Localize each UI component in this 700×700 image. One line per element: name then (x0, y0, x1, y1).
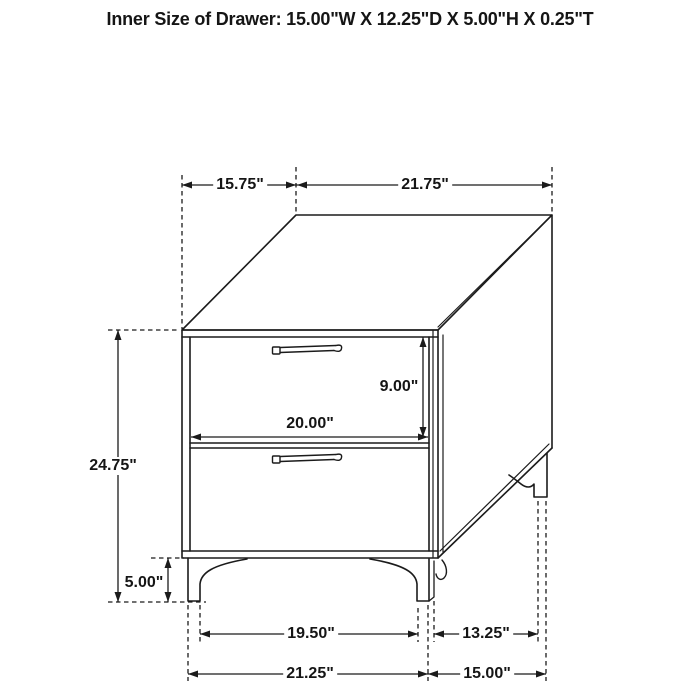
dim-label-leg-height: 5.00" (122, 574, 167, 592)
back-right-leg (509, 453, 547, 497)
dim-label-drawer-front-width: 20.00" (283, 415, 337, 433)
side-bottom-slant-inner (440, 444, 549, 551)
dim-label-side-feet-inner: 13.25" (459, 625, 513, 643)
front-right-leg (370, 559, 429, 601)
bottom-drawer-handle (273, 454, 342, 463)
furniture-outline (182, 215, 552, 601)
nightstand-line-drawing (0, 0, 700, 700)
top-edge-inner (438, 219, 548, 327)
top-face (182, 215, 552, 330)
front-face (182, 330, 438, 558)
side-apron-hook (436, 560, 446, 579)
dim-label-top-depth: 15.75" (213, 176, 267, 194)
diagram-title: Inner Size of Drawer: 15.00"W X 12.25"D … (107, 9, 594, 30)
side-bottom-slant (438, 448, 552, 558)
drawer-handles (273, 345, 342, 463)
front-left-leg (188, 558, 247, 601)
dim-label-side-feet-outer: 15.00" (460, 665, 514, 683)
top-drawer-handle (273, 345, 342, 354)
dim-label-overall-height: 24.75" (86, 457, 140, 475)
dim-label-drawer-front-height: 9.00" (377, 378, 422, 396)
dim-label-top-width: 21.75" (398, 176, 452, 194)
dim-label-front-feet-outer: 21.25" (283, 665, 337, 683)
dimension-diagram: Inner Size of Drawer: 15.00"W X 12.25"D … (0, 0, 700, 700)
dim-label-front-feet-inner: 19.50" (284, 625, 338, 643)
